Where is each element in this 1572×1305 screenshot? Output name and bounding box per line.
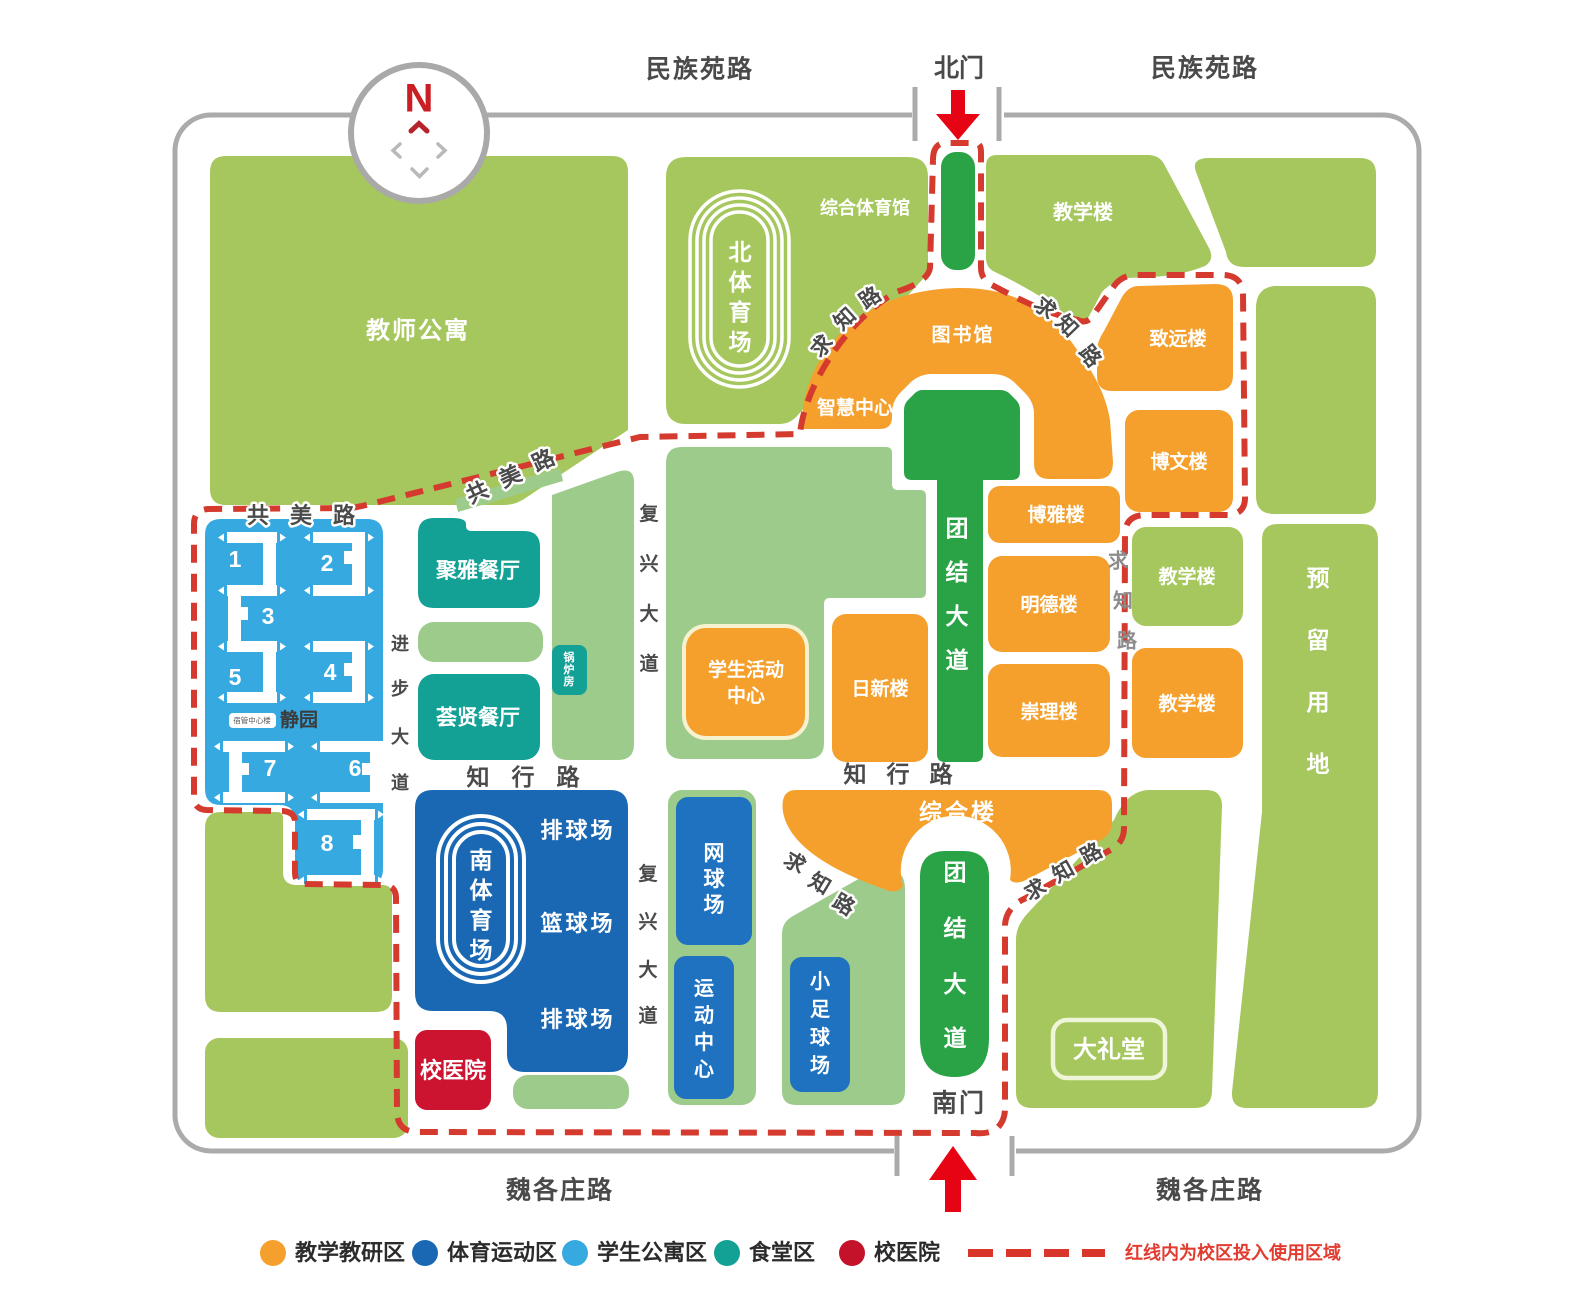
svg-text:宿管中心楼: 宿管中心楼 — [233, 715, 271, 725]
svg-text:动: 动 — [694, 1004, 714, 1027]
svg-text:中: 中 — [694, 1030, 714, 1054]
svg-text:魏各庄路: 魏各庄路 — [505, 1176, 614, 1205]
svg-text:教学楼: 教学楼 — [1053, 200, 1113, 224]
svg-text:道: 道 — [391, 772, 409, 793]
svg-text:道: 道 — [639, 652, 658, 675]
svg-text:运: 运 — [694, 977, 714, 1000]
svg-text:大: 大 — [638, 958, 657, 981]
svg-text:N: N — [405, 77, 434, 121]
svg-text:荟贤餐厅: 荟贤餐厅 — [435, 706, 520, 730]
svg-text:心: 心 — [694, 1058, 714, 1081]
svg-text:民族苑路: 民族苑路 — [1151, 54, 1259, 83]
svg-text:红线内为校区投入使用区域: 红线内为校区投入使用区域 — [1125, 1242, 1341, 1263]
svg-text:明德楼: 明德楼 — [1020, 593, 1077, 616]
svg-text:8: 8 — [321, 830, 334, 856]
svg-text:球: 球 — [704, 868, 726, 891]
svg-text:学生公寓区: 学生公寓区 — [597, 1240, 707, 1265]
svg-text:校医院: 校医院 — [874, 1240, 940, 1265]
svg-text:综合体育馆: 综合体育馆 — [820, 197, 910, 218]
svg-text:场: 场 — [470, 937, 493, 963]
svg-text:育: 育 — [470, 907, 493, 933]
svg-text:篮球场: 篮球场 — [539, 911, 615, 936]
svg-text:结: 结 — [946, 559, 969, 585]
svg-text:校医院: 校医院 — [420, 1058, 486, 1083]
svg-text:球: 球 — [810, 1026, 831, 1049]
svg-text:兴: 兴 — [639, 553, 658, 575]
svg-text:1: 1 — [229, 546, 242, 572]
svg-text:小: 小 — [810, 970, 830, 993]
svg-text:美: 美 — [290, 503, 313, 528]
svg-text:大: 大 — [944, 971, 967, 997]
svg-text:道: 道 — [638, 1004, 657, 1027]
svg-text:魏各庄路: 魏各庄路 — [1155, 1176, 1264, 1205]
svg-text:博雅楼: 博雅楼 — [1027, 503, 1084, 526]
svg-text:食堂区: 食堂区 — [749, 1240, 815, 1265]
svg-text:南门: 南门 — [932, 1089, 986, 1118]
svg-text:进: 进 — [391, 634, 409, 654]
svg-text:聚雅餐厅: 聚雅餐厅 — [435, 559, 520, 583]
svg-text:场: 场 — [810, 1054, 830, 1077]
svg-text:兴: 兴 — [638, 911, 657, 933]
svg-text:博文楼: 博文楼 — [1150, 450, 1207, 473]
svg-text:路: 路 — [1117, 628, 1138, 652]
svg-text:行: 行 — [886, 761, 910, 787]
svg-text:排球场: 排球场 — [540, 1007, 615, 1032]
svg-text:7: 7 — [264, 755, 277, 781]
svg-text:场: 场 — [729, 329, 752, 355]
svg-text:锅: 锅 — [564, 650, 575, 664]
svg-text:道: 道 — [946, 647, 969, 673]
svg-text:大: 大 — [946, 603, 969, 629]
svg-text:网: 网 — [704, 842, 725, 865]
svg-text:排球场: 排球场 — [540, 818, 615, 843]
svg-text:大礼堂: 大礼堂 — [1073, 1035, 1145, 1063]
svg-text:团: 团 — [944, 859, 967, 885]
svg-text:用: 用 — [1307, 689, 1330, 715]
svg-text:5: 5 — [229, 664, 242, 690]
svg-text:体育运动区: 体育运动区 — [447, 1240, 557, 1265]
svg-text:复: 复 — [638, 502, 659, 525]
svg-text:6: 6 — [349, 755, 362, 781]
svg-text:知: 知 — [467, 764, 490, 790]
svg-text:炉: 炉 — [564, 662, 575, 676]
svg-text:致远楼: 致远楼 — [1149, 327, 1206, 350]
svg-text:地: 地 — [1307, 751, 1330, 777]
svg-text:北门: 北门 — [934, 54, 984, 83]
svg-text:图书馆: 图书馆 — [931, 323, 994, 346]
svg-text:北: 北 — [729, 239, 752, 265]
svg-text:路: 路 — [333, 503, 356, 528]
svg-text:场: 场 — [704, 894, 725, 917]
svg-text:崇理楼: 崇理楼 — [1020, 700, 1077, 723]
svg-text:综合楼: 综合楼 — [919, 799, 997, 825]
svg-text:复: 复 — [637, 862, 658, 885]
svg-text:教师公寓: 教师公寓 — [366, 316, 470, 344]
svg-text:大: 大 — [639, 602, 658, 625]
svg-text:共: 共 — [247, 503, 269, 528]
svg-text:留: 留 — [1307, 627, 1330, 653]
svg-text:步: 步 — [391, 678, 409, 699]
svg-text:大: 大 — [391, 726, 409, 747]
svg-text:团: 团 — [946, 515, 969, 541]
svg-text:2: 2 — [321, 550, 334, 576]
svg-text:4: 4 — [324, 659, 337, 685]
svg-text:教学楼: 教学楼 — [1158, 692, 1215, 715]
svg-text:结: 结 — [944, 915, 967, 941]
svg-text:民族苑路: 民族苑路 — [646, 55, 754, 84]
svg-text:南: 南 — [470, 847, 493, 873]
svg-text:路: 路 — [930, 761, 954, 787]
svg-text:智慧中心: 智慧中心 — [817, 396, 893, 419]
svg-text:行: 行 — [511, 764, 535, 790]
svg-text:道: 道 — [944, 1025, 967, 1051]
svg-text:预: 预 — [1307, 565, 1330, 591]
svg-text:育: 育 — [729, 299, 752, 325]
svg-text:路: 路 — [557, 764, 581, 790]
svg-text:学生活动: 学生活动 — [708, 658, 784, 681]
svg-text:足: 足 — [810, 999, 831, 1021]
svg-text:3: 3 — [262, 603, 275, 629]
svg-text:知: 知 — [1113, 588, 1133, 612]
svg-text:房: 房 — [564, 674, 575, 688]
svg-text:日新楼: 日新楼 — [851, 677, 908, 700]
svg-text:教学教研区: 教学教研区 — [295, 1240, 405, 1265]
svg-text:知: 知 — [844, 761, 867, 787]
svg-text:体: 体 — [470, 877, 494, 903]
svg-text:中心: 中心 — [727, 684, 765, 707]
svg-text:体: 体 — [729, 269, 753, 295]
svg-text:教学楼: 教学楼 — [1158, 565, 1215, 588]
svg-text:求: 求 — [1108, 549, 1129, 572]
svg-text:静园: 静园 — [280, 708, 318, 731]
